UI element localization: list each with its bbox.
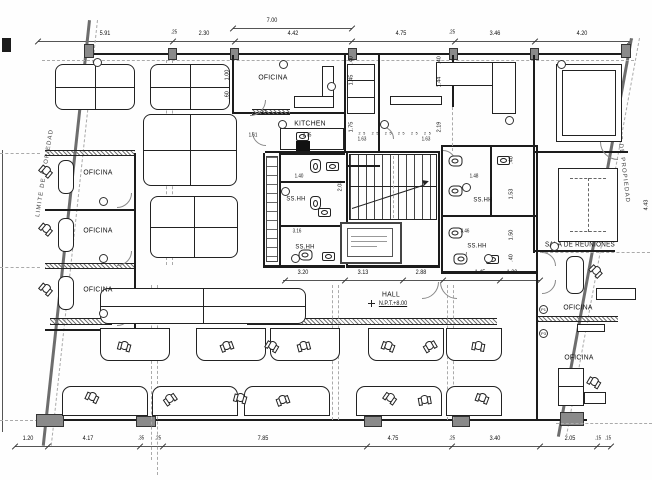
chair [473, 340, 483, 350]
dim-bot-0: 1.20 [23, 436, 34, 442]
dim-top-5: 4.20 [577, 31, 588, 37]
dim-int: 1.75 [350, 122, 355, 133]
keynote-circle [380, 120, 389, 129]
dim-bot-9: .15 [595, 437, 601, 442]
sofa [58, 160, 74, 194]
wall-hatch [538, 316, 618, 322]
desk-cluster [150, 196, 238, 258]
wall [232, 55, 234, 113]
dim-int: .40 [510, 156, 515, 164]
wall [346, 151, 440, 153]
dim-int: 2.03 [339, 181, 344, 192]
wall [438, 151, 440, 267]
chair [40, 222, 53, 235]
dim-int: 3.46 [461, 230, 470, 235]
dim-top-overall: 7.00 [267, 18, 278, 24]
sink [322, 252, 335, 261]
chair [590, 264, 603, 277]
frame-line [2, 150, 3, 432]
wall-pier [621, 44, 631, 58]
room-label-bath-right-upper: SS.HH [473, 197, 492, 204]
wall [490, 147, 492, 215]
sink [318, 208, 331, 217]
desk-large-inner [562, 70, 616, 136]
desk [294, 96, 334, 108]
elevator-text-line [351, 246, 377, 247]
grid-line [540, 252, 650, 253]
toilet [449, 156, 463, 167]
room-label-kitchen: KITCHEN [294, 120, 326, 127]
keynote-circle [278, 120, 287, 129]
wall [536, 250, 538, 420]
wall [441, 271, 538, 274]
desk-cluster [150, 64, 230, 110]
elevator-text-line [351, 236, 387, 237]
keynote-p3: P3 [539, 329, 548, 338]
stairs-centerline [393, 156, 394, 218]
wall-pier [84, 44, 94, 58]
keynote-circle [550, 242, 559, 251]
toilet [449, 186, 463, 197]
dim-bot-5: 4.75 [388, 436, 399, 442]
desk-cluster [100, 288, 306, 324]
keynote-circle [99, 197, 108, 206]
keynote-circle [291, 254, 300, 263]
keynote-circle [99, 309, 108, 318]
keynote-circle [93, 58, 102, 67]
wall-dashed [452, 107, 453, 151]
dim-line-middle [283, 280, 540, 281]
level-marker [371, 300, 372, 307]
dim-int: .60 [226, 91, 231, 99]
desk [492, 62, 516, 114]
dim-int: .40 [510, 254, 515, 262]
toilet [299, 250, 313, 261]
sofa [58, 218, 74, 252]
room-label-bath-right-lower: SS.HH [467, 243, 486, 250]
meeting-table-line [570, 231, 606, 232]
keynote-circle [505, 116, 514, 125]
lockers [266, 156, 278, 262]
wall [344, 55, 346, 153]
dim-int: 2.19 [438, 122, 443, 133]
meeting-table-line [570, 178, 606, 179]
wall [441, 145, 443, 273]
workstation [446, 386, 502, 416]
wall [281, 225, 345, 227]
sofa [566, 256, 584, 294]
dim-bot-4: 7.85 [258, 436, 269, 442]
dim-top-2: 4.42 [288, 31, 299, 37]
dim-int: .40 [438, 56, 443, 64]
toilet [310, 159, 321, 173]
keynote-circle [99, 254, 108, 263]
dim-int: 1.61 [249, 134, 258, 139]
room-label-office-left-1: OFICINA [83, 169, 112, 176]
dim-int: 2.75 [303, 134, 312, 139]
wall [263, 153, 265, 267]
keynote-p1: P1 [539, 305, 548, 314]
dim-line-top [38, 41, 630, 42]
desk-cluster [55, 64, 135, 110]
wall [378, 55, 380, 153]
dim-mid-2: 2.88 [416, 270, 427, 276]
dim-int: 1.45 [350, 75, 355, 86]
wall-hatch [45, 150, 135, 156]
side-table [577, 324, 605, 332]
room-label-bath-left-upper: SS.HH [286, 196, 305, 203]
dim-top-1: 2.30 [199, 31, 210, 37]
wall-pier [449, 48, 458, 60]
grid-ext [0, 153, 40, 154]
dim-int: 1.00 [226, 70, 231, 81]
wall [281, 181, 345, 183]
wall [263, 265, 345, 268]
chair [277, 394, 289, 406]
room-label-bath-left-lower: SS.HH [295, 244, 314, 251]
closet [347, 64, 375, 114]
dim-bot-6: .25 [449, 437, 455, 442]
keynote-circle [281, 187, 290, 196]
wall [346, 265, 440, 268]
dim-line-overall [233, 28, 352, 29]
wall-top-dashed [42, 60, 634, 61]
desk-return [584, 392, 606, 404]
dim-mid-1: 3.13 [358, 270, 369, 276]
door-arc [528, 252, 556, 280]
keynote-circle [327, 82, 336, 91]
wall-pier [136, 416, 156, 427]
sink [326, 162, 339, 171]
dim-int: 1.50 [510, 230, 515, 241]
wall-pier [364, 416, 382, 427]
wall [346, 165, 380, 167]
dim-int: .40 [350, 56, 355, 64]
dim-int: 1.48 [470, 175, 479, 180]
credenza [390, 96, 442, 105]
dim-bot-2: .35 [138, 437, 144, 442]
dim-top-small-0: .25 [171, 31, 177, 36]
wall-pier [36, 414, 64, 427]
kitchen-counter [280, 128, 344, 150]
dim-int: 3.16 [293, 230, 302, 235]
frame-block [2, 38, 11, 52]
closet-shelf [347, 97, 375, 98]
wall [45, 209, 135, 211]
dim-tick [349, 25, 355, 31]
desk-cluster [143, 114, 237, 186]
wall [279, 153, 281, 267]
side-table [596, 288, 636, 300]
wall [443, 215, 536, 217]
floor-plan: 7.00 5.91 .25 2.30 4.42 4.75 .25 3.46 4.… [0, 0, 652, 480]
dim-top-4: 3.46 [490, 31, 501, 37]
sofa [58, 276, 74, 310]
room-label-office-left-3: OFICINA [83, 286, 112, 293]
desk-shelf [558, 386, 584, 387]
chair [588, 375, 600, 387]
keynote-circle [279, 60, 288, 69]
stair-tread-dims: 25 25 25 25 25 25 [359, 131, 434, 136]
workstation [62, 386, 148, 416]
dim-int: 4.43 [645, 200, 650, 211]
dim-int: 1.63 [358, 138, 367, 143]
meeting-table-line [588, 178, 589, 232]
dim-int: 1.53 [510, 189, 515, 200]
dim-int: 1.44 [438, 77, 443, 88]
grid-ext [0, 420, 38, 421]
chair [221, 340, 233, 352]
dim-top-0: 5.91 [100, 31, 111, 37]
dim-top-small-1: .25 [449, 31, 455, 36]
dim-bot-1: 4.17 [83, 436, 94, 442]
urinal [454, 254, 468, 265]
wall-pier [452, 416, 470, 427]
dim-bot-8: 2.05 [565, 436, 576, 442]
chair [298, 340, 309, 351]
dim-bot-3: .25 [155, 437, 161, 442]
wall [533, 55, 535, 253]
dim-line-bottom [15, 446, 611, 447]
dim-int: 1.63 [422, 138, 431, 143]
dim-int: 1.40 [295, 175, 304, 180]
keynote-circle [484, 254, 493, 263]
hall-level: N.P.T.+8.00 [379, 301, 407, 307]
room-label-office-top: OFICINA [258, 74, 287, 81]
dim-bot-10: .15 [605, 437, 611, 442]
kitchen-stove [296, 141, 310, 151]
wall-bottom [45, 419, 587, 421]
workstation [100, 328, 170, 361]
chair [40, 282, 53, 295]
elevator-text-line [351, 241, 387, 242]
keynote-circle [462, 183, 471, 192]
keynote-circle [557, 60, 566, 69]
dim-top-3: 4.75 [396, 31, 407, 37]
dim-mid-0: 3.20 [298, 270, 309, 276]
room-label-office-right-mid: OFICINA [563, 304, 592, 311]
elevator-cab [347, 228, 393, 257]
room-label-office-left-2: OFICINA [83, 227, 112, 234]
chair [419, 394, 429, 404]
room-label-office-right-low: OFICINA [564, 354, 593, 361]
room-label-hall: HALL [382, 291, 400, 298]
dim-tick [608, 443, 614, 449]
dim-int: .77 [260, 112, 266, 117]
grid-ext [0, 267, 40, 268]
grid-line [556, 423, 652, 424]
desk [558, 368, 584, 406]
dim-bot-7: 3.40 [490, 436, 501, 442]
wall [279, 153, 345, 155]
wall-pier [168, 48, 177, 60]
